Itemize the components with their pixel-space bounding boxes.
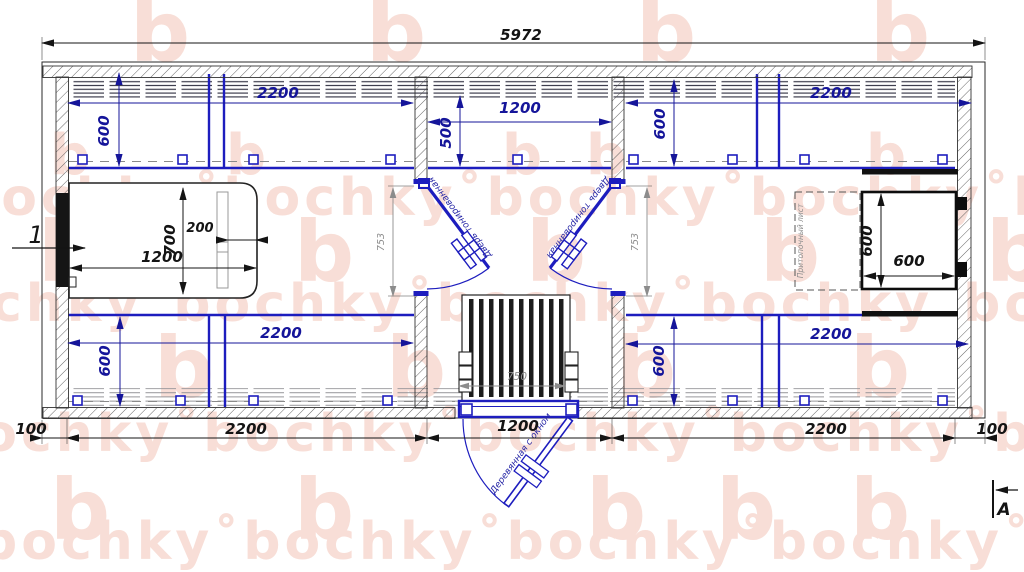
bench-leg — [938, 396, 947, 405]
grate-bar — [499, 299, 504, 397]
stove — [862, 192, 967, 289]
dim-grate-width: 750 — [507, 371, 527, 383]
bench-leg — [628, 396, 637, 405]
bench-leg — [249, 396, 258, 405]
wall-bottom-right — [578, 408, 972, 419]
dim-stove-depth: 600 — [858, 225, 876, 256]
dim-top-right-width: 2200 — [810, 84, 852, 102]
bench-leg — [383, 396, 392, 405]
bench-leg — [249, 155, 258, 164]
bench-leg — [800, 155, 809, 164]
dim-overall-length: 5972 — [500, 26, 542, 44]
grate-bar — [549, 299, 554, 397]
dim-bottom-right-width: 2200 — [810, 325, 852, 343]
bed-headboard — [56, 193, 69, 287]
bench-leg — [800, 396, 809, 405]
dim-mid-depth: 500 — [437, 117, 455, 148]
bench-leg — [78, 155, 87, 164]
wall-top — [43, 66, 972, 78]
grate-bar — [529, 299, 534, 397]
dim-bottom-left-width: 2200 — [260, 324, 302, 342]
wall-partition-right-lower — [612, 293, 624, 408]
stove-mount — [956, 262, 967, 277]
view-marker-number: 1 — [28, 221, 43, 249]
heat-shield-top — [862, 169, 958, 175]
grate-bar — [539, 299, 544, 397]
dim-mid-width: 1200 — [499, 99, 541, 117]
dim-stove-width: 600 — [893, 252, 924, 270]
floor-plan: Дверь тонированная Дверь тонированная Де… — [0, 0, 1024, 567]
stove-mount — [956, 197, 967, 210]
bench-leg — [176, 396, 185, 405]
bench-leg — [938, 155, 947, 164]
bench-leg — [728, 396, 737, 405]
dim-bottom-left-depth: 600 — [96, 345, 114, 376]
wall-partition-right-upper — [612, 77, 624, 183]
hearth-sheet-label: Притопочный лист — [796, 203, 805, 278]
bench-leg — [73, 396, 82, 405]
door-left: Дверь тонированная — [419, 174, 495, 289]
dim-door-opening-left: 753 — [376, 233, 387, 251]
dim-bed-width: 700 — [161, 224, 179, 255]
bench-leg — [386, 155, 395, 164]
dim-bottom-2200-left: 2200 — [225, 420, 267, 438]
dim-door-opening-right: 753 — [630, 233, 641, 251]
grate-bar — [559, 299, 564, 397]
door-jamb — [611, 291, 626, 296]
wall-bottom-left — [43, 408, 455, 419]
dim-bottom-1200: 1200 — [497, 417, 539, 435]
floor-grate — [459, 295, 578, 401]
bench-leg — [178, 155, 187, 164]
wall-right — [958, 77, 972, 408]
door-right: Дверь тонированная — [543, 174, 620, 289]
grate-bar — [479, 299, 484, 397]
entrance-threshold — [459, 401, 578, 417]
bench-leg — [629, 155, 638, 164]
door-jamb — [414, 291, 429, 296]
dim-bottom-2200-right: 2200 — [805, 420, 847, 438]
dim-top-left-depth: 600 — [95, 115, 113, 146]
dim-bed-shelf: 200 — [186, 221, 213, 236]
dim-top-right-depth: 600 — [651, 108, 669, 139]
bench-leg — [728, 155, 737, 164]
wall-partition-left-lower — [415, 293, 427, 408]
dim-bottom-100-right: 100 — [976, 420, 1007, 438]
section-marker-a: А — [993, 480, 1018, 520]
dim-bottom-100-left: 100 — [15, 420, 46, 438]
section-marker-letter: А — [995, 500, 1010, 520]
bench-leg — [513, 155, 522, 164]
grate-bar — [489, 299, 494, 397]
dim-top-left-width: 2200 — [257, 84, 299, 102]
heat-shield-bottom — [862, 311, 958, 317]
dim-bottom-right-depth: 600 — [650, 345, 668, 376]
wall-partition-left-upper — [415, 77, 427, 183]
